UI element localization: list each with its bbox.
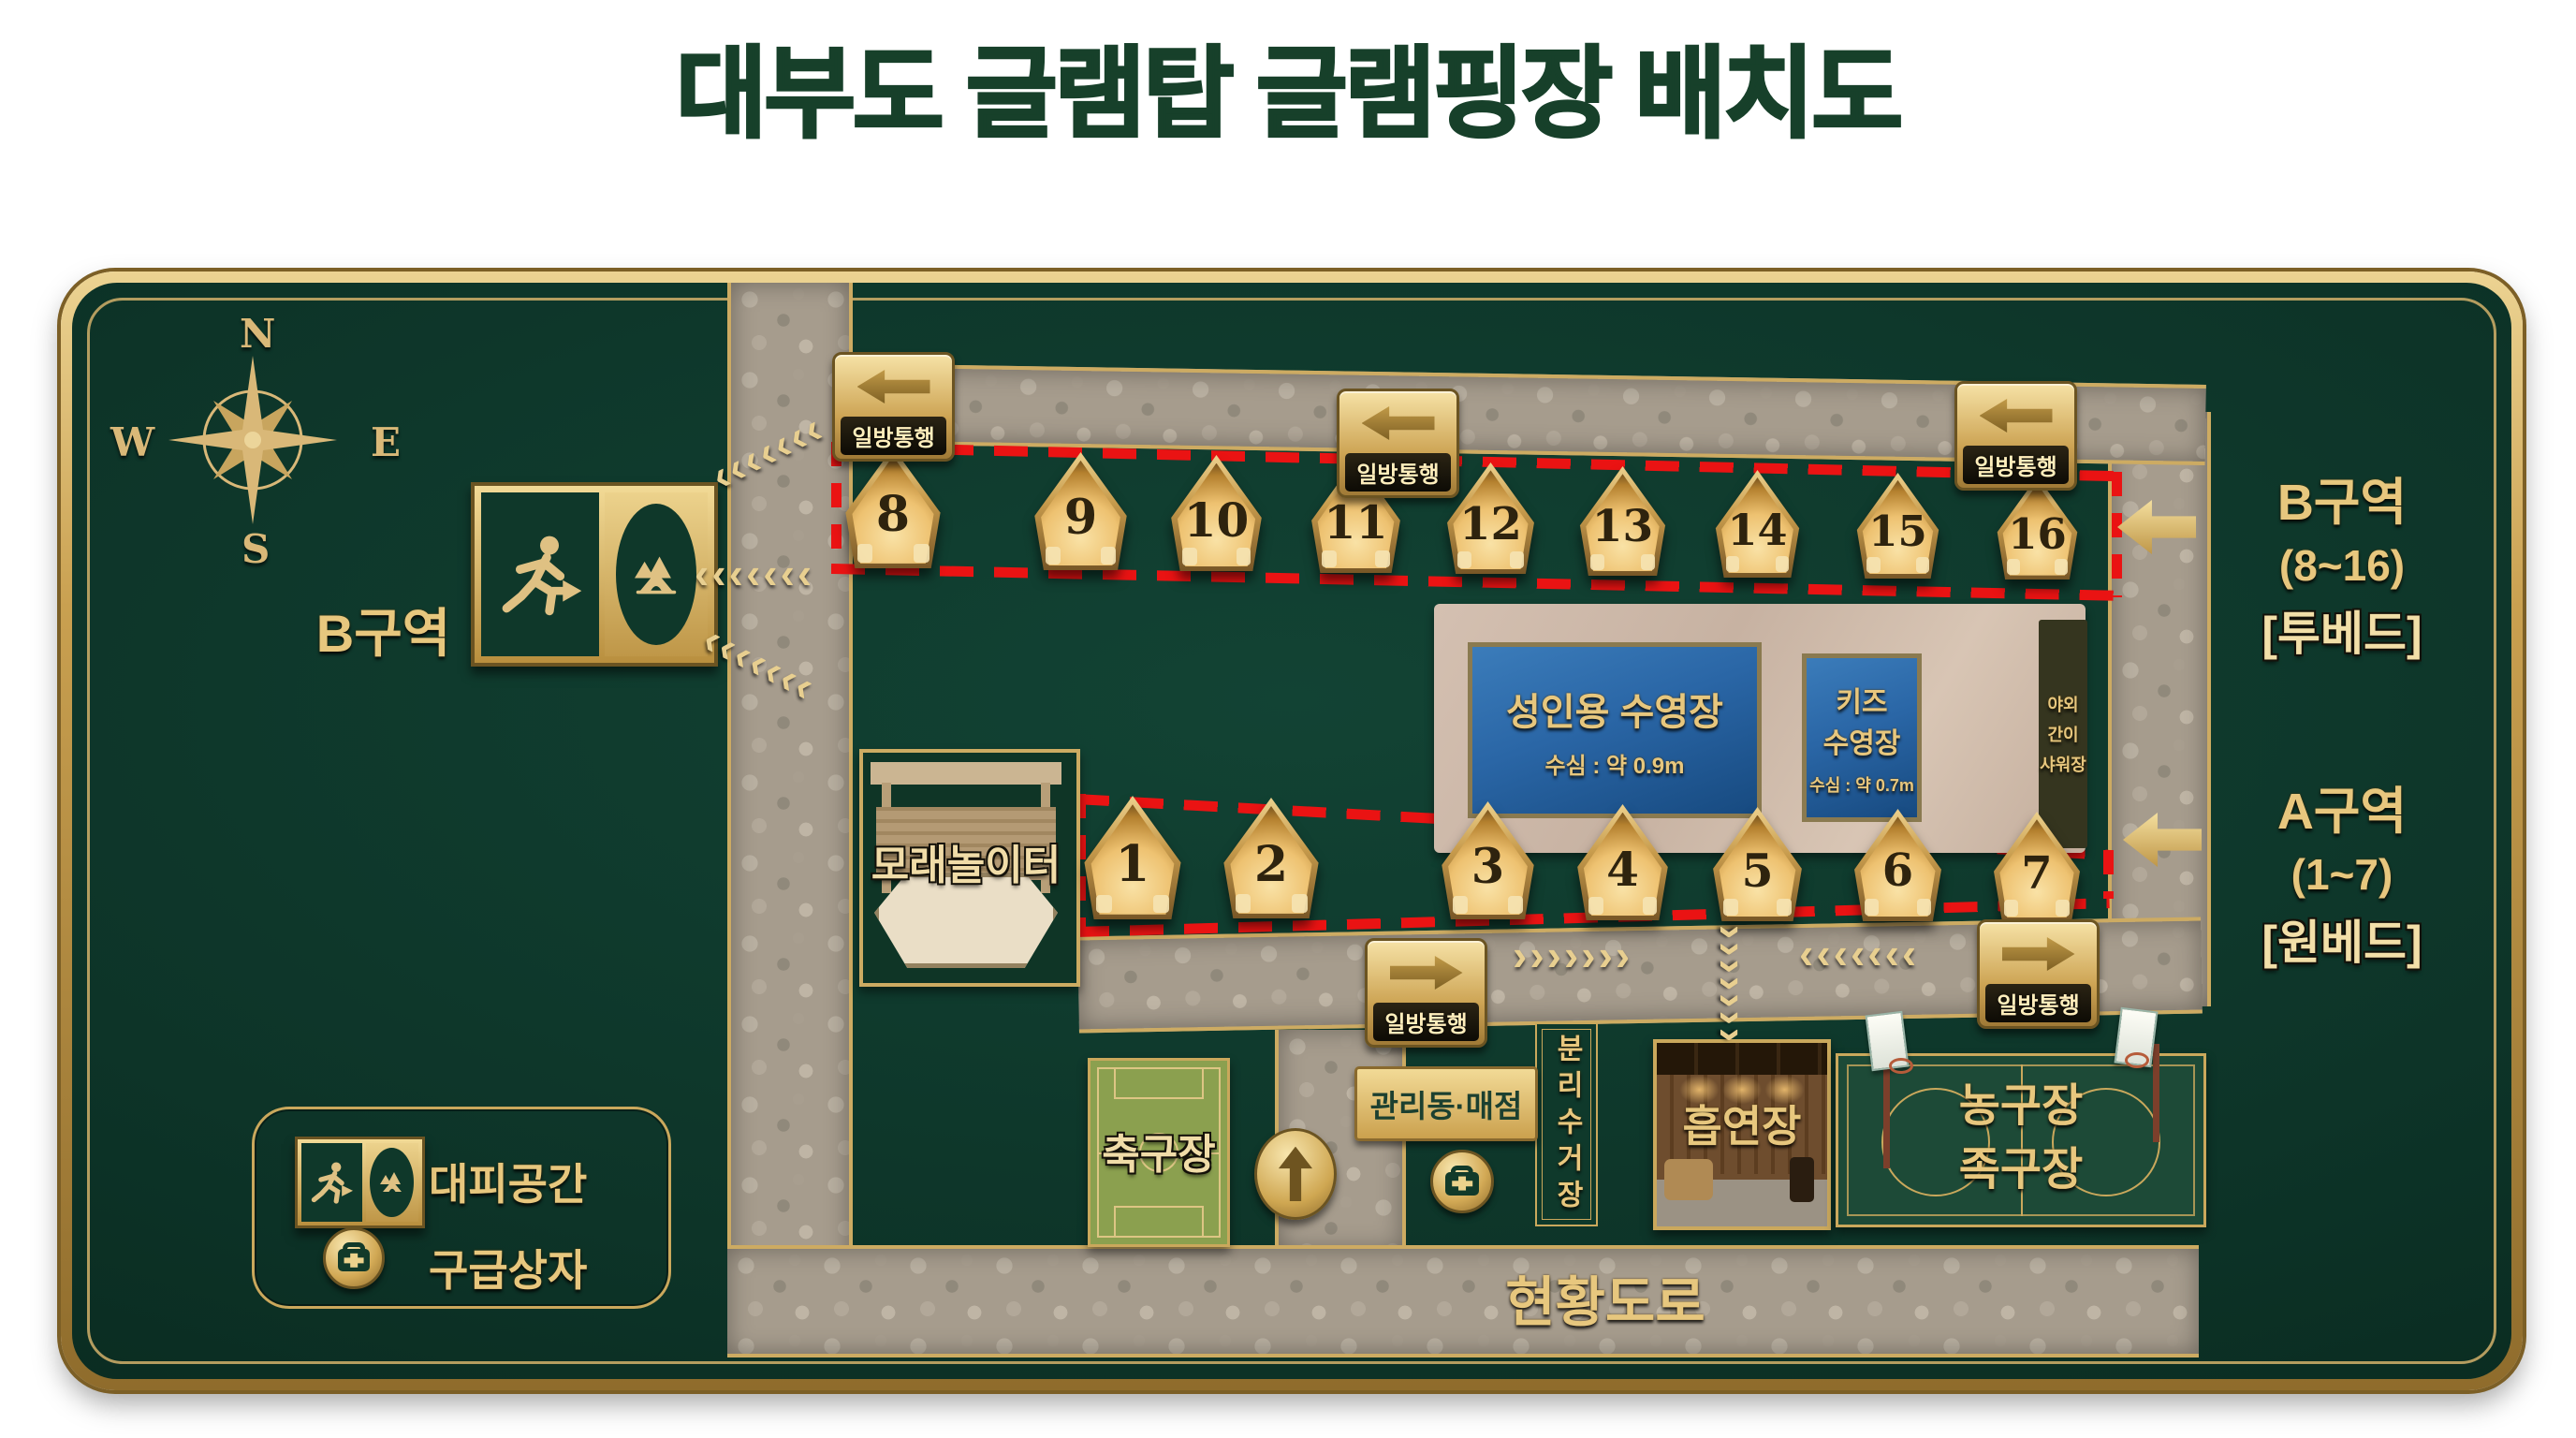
first-aid-icon [1430,1150,1494,1213]
tent-number: 4 [1573,842,1672,897]
tent-16: 16 [1994,477,2081,580]
up-arrow-icon [1279,1147,1312,1202]
one-way-arrow-icon [841,360,946,413]
soccer-field: 축구장 [1088,1058,1230,1247]
zone-b-side-label: B구역 (8~16) [투베드] [2202,461,2482,664]
tent-number: 14 [1712,505,1803,555]
tent-logo-icon [370,1148,414,1217]
one-way-sign-5: 일방통행 [1977,919,2100,1029]
kids-pool-depth: 수심 : 약 0.7m [1809,772,1914,797]
one-way-arrow-icon [1963,389,2069,442]
legend: 대피공간 구급상자 [252,1107,671,1309]
one-way-arrow-icon [1985,928,2091,980]
compass-w: W [110,419,154,465]
zone-a-range: (1~7) [2202,849,2482,900]
tent-number: 1 [1080,835,1185,893]
court-label-2: 족구장 [1838,1140,2203,1189]
one-way-label: 일방통행 [1345,453,1451,492]
sand-playground: 모래놀이터 [859,749,1080,987]
tent-5: 5 [1709,807,1806,921]
camp-logo-panel [366,1143,418,1222]
tent-number: 5 [1709,844,1806,898]
tent-number: 12 [1443,498,1538,550]
shower-label-2: 간이 [2047,722,2078,746]
smoking-area-label: 흡연장 [1657,1097,1827,1150]
tent-number: 11 [1308,495,1404,550]
legend-first-aid-label: 구급상자 [429,1237,587,1299]
camp-logo-panel [605,492,708,656]
one-way-label: 일방통행 [841,417,946,455]
adult-pool-depth: 수심 : 약 0.9m [1545,747,1685,780]
kids-pool-label-1: 키즈 [1836,679,1887,720]
chevron-arrows-4: ››››››› [1513,936,1632,974]
kids-pool-label-2: 수영장 [1823,720,1901,761]
tent-14: 14 [1712,470,1803,578]
tent-7: 7 [1990,812,2084,922]
tent-3: 3 [1438,801,1538,919]
one-way-sign-4: 일방통행 [1365,938,1487,1048]
chevron-arrows-6: ‹‹‹‹‹‹‹ [1799,934,1919,972]
zone-b-range: (8~16) [2202,540,2482,591]
glamping-map-page: 대부도 글램탑 글램핑장 배치도 현황도로 N S W E B구역 [0,0,2576,1438]
court-label-1: 농구장 [1838,1077,2203,1125]
one-way-label: 일방통행 [1963,446,2069,484]
tent-15: 15 [1853,473,1942,579]
adult-pool: 성인용 수영장 수심 : 약 0.9m [1468,642,1762,818]
zone-b-boundary-right [2112,472,2122,597]
one-way-arrow-icon [1345,397,1451,449]
tent-13: 13 [1576,466,1669,576]
tent-number: 15 [1853,506,1942,556]
tent-number: 9 [1031,490,1131,546]
zone-b-sign-label: B구역 [301,599,465,659]
zone-a-side-label: A구역 (1~7) [원베드] [2202,770,2482,973]
one-way-arrow-icon [1373,946,1479,999]
compass-e: E [371,419,401,465]
tent-9: 9 [1031,452,1131,570]
soccer-field-label: 축구장 [1081,1123,1237,1179]
one-way-label: 일방통행 [1373,1003,1479,1041]
tent-1: 1 [1080,796,1185,919]
tent-number: 13 [1576,501,1669,552]
tent-4: 4 [1573,804,1672,920]
page-title: 대부도 글램탑 글램핑장 배치도 [0,13,2576,157]
chevron-arrows-5: ››››››› [1714,925,1751,1045]
basketball-hoop-pole [2153,1044,2159,1142]
tent-number: 10 [1167,492,1266,548]
runner-icon [481,492,599,656]
compass-s: S [241,526,270,572]
evacuation-exit-sign [471,482,718,667]
basketball-hoop-rim [2125,1052,2149,1068]
zone-b-name: B구역 [2202,461,2482,535]
tent-number: 7 [1990,847,2084,900]
shower-label-1: 야외 [2047,692,2078,716]
road-label: 현황도로 [1395,1264,1816,1331]
tent-6: 6 [1851,809,1945,921]
compass-n: N [240,311,275,357]
compass-icon: N S W E [140,328,365,552]
sports-court: 농구장 족구장 [1836,1053,2206,1227]
kids-pool: 키즈 수영장 수심 : 약 0.7m [1802,653,1922,822]
tent-10: 10 [1167,455,1266,571]
legend-evacuation-icon [295,1137,425,1228]
up-arrow-sign [1254,1128,1337,1220]
runner-icon [301,1143,362,1222]
recycle-station: 분리수거장 [1535,1022,1598,1226]
office-store-sign: 관리동·매점 [1354,1066,1538,1141]
recycle-label: 분리수거장 [1546,1034,1588,1216]
basketball-hoop-rim [1889,1058,1913,1074]
tent-logo-icon [616,504,696,645]
tent-number: 2 [1220,836,1323,893]
one-way-label: 일방통행 [1985,984,2091,1022]
tent-number: 16 [1994,509,2081,559]
tent-8: 8 [842,448,944,568]
pergola-icon [871,762,1061,785]
one-way-sign-1: 일방통행 [832,352,955,462]
zone-b-bed-type: [투베드] [2202,596,2482,664]
zone-a-name: A구역 [2202,770,2482,844]
legend-first-aid-icon [323,1227,385,1289]
tent-number: 8 [842,486,944,543]
chevron-arrows-2: ‹‹‹‹‹‹‹ [695,554,814,592]
tent-2: 2 [1220,798,1323,918]
shower-label-3: 샤워장 [2040,752,2086,776]
zone-a-bed-type: [원베드] [2202,905,2482,973]
one-way-sign-2: 일방통행 [1337,389,1459,498]
tent-number: 3 [1438,839,1538,895]
smoking-area: 흡연장 [1653,1039,1831,1230]
one-way-sign-3: 일방통행 [1954,381,2077,491]
legend-evacuation-label: 대피공간 [429,1151,587,1212]
adult-pool-label: 성인용 수영장 [1506,682,1723,736]
tent-number: 6 [1851,844,1945,897]
sand-playground-label: 모래놀이터 [856,833,1076,889]
zone-a-boundary-right [2103,850,2114,899]
